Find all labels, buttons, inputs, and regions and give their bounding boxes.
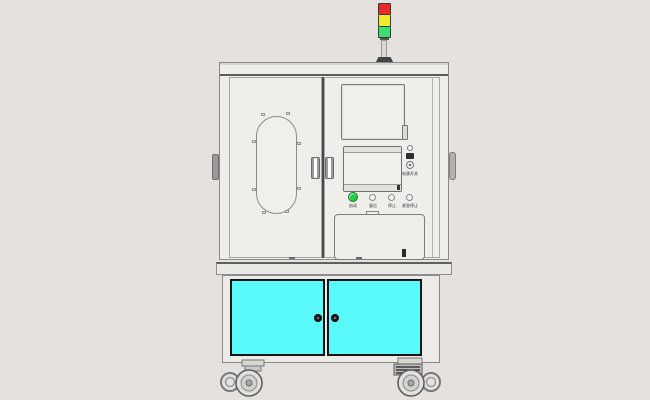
oval-view-window — [256, 116, 297, 214]
caster-wheel-left — [218, 358, 268, 400]
tower-lamp-yellow-icon — [378, 15, 391, 27]
panel-mark — [289, 257, 295, 259]
right-door-handle — [325, 157, 334, 179]
right-side-handle — [449, 152, 456, 180]
left-side-handle — [212, 154, 219, 180]
tower-lamp-green-icon — [378, 27, 391, 38]
right-frame-line — [432, 77, 433, 258]
cart-right-door — [327, 279, 422, 356]
window-clip — [297, 187, 301, 190]
machine-render: 电源开关 启动 复位 停止 紧急停止 — [0, 0, 650, 400]
hmi-screen — [343, 146, 402, 192]
window-clip — [252, 188, 256, 191]
keyboard-drawer — [334, 214, 425, 260]
knob-highlight — [334, 317, 336, 319]
start-button — [348, 192, 358, 202]
cart-left-door — [230, 279, 325, 356]
window-clip — [285, 210, 289, 213]
screen-top-bezel — [344, 147, 401, 153]
estop-button-label: 紧急停止 — [397, 204, 423, 208]
stop-button — [388, 194, 395, 201]
side-panel-label: 电源开关 — [398, 172, 422, 176]
signal-tower — [370, 0, 400, 66]
window-clip — [262, 211, 266, 214]
window-latch — [402, 125, 408, 140]
estop-button — [406, 194, 413, 201]
left-door-handle — [311, 157, 320, 179]
tower-pole — [381, 40, 387, 58]
upper-view-window — [341, 84, 405, 140]
window-clip — [252, 140, 256, 143]
indicator-lamp — [407, 145, 413, 151]
worktop — [216, 262, 452, 275]
reset-button — [369, 194, 376, 201]
screen-latch — [397, 185, 400, 190]
panel-mark — [356, 257, 362, 259]
window-clip — [297, 142, 301, 145]
tower-lamp-red-icon — [378, 3, 391, 15]
cabinet-roof — [220, 63, 448, 76]
usb-port — [406, 153, 414, 159]
caster-wheel-right — [386, 354, 442, 398]
screen-bottom-bezel — [344, 184, 401, 191]
knob-highlight — [317, 317, 319, 319]
key-switch-slot — [409, 164, 411, 166]
drawer-latch — [402, 249, 406, 257]
window-clip — [261, 113, 265, 116]
window-clip — [286, 112, 290, 115]
